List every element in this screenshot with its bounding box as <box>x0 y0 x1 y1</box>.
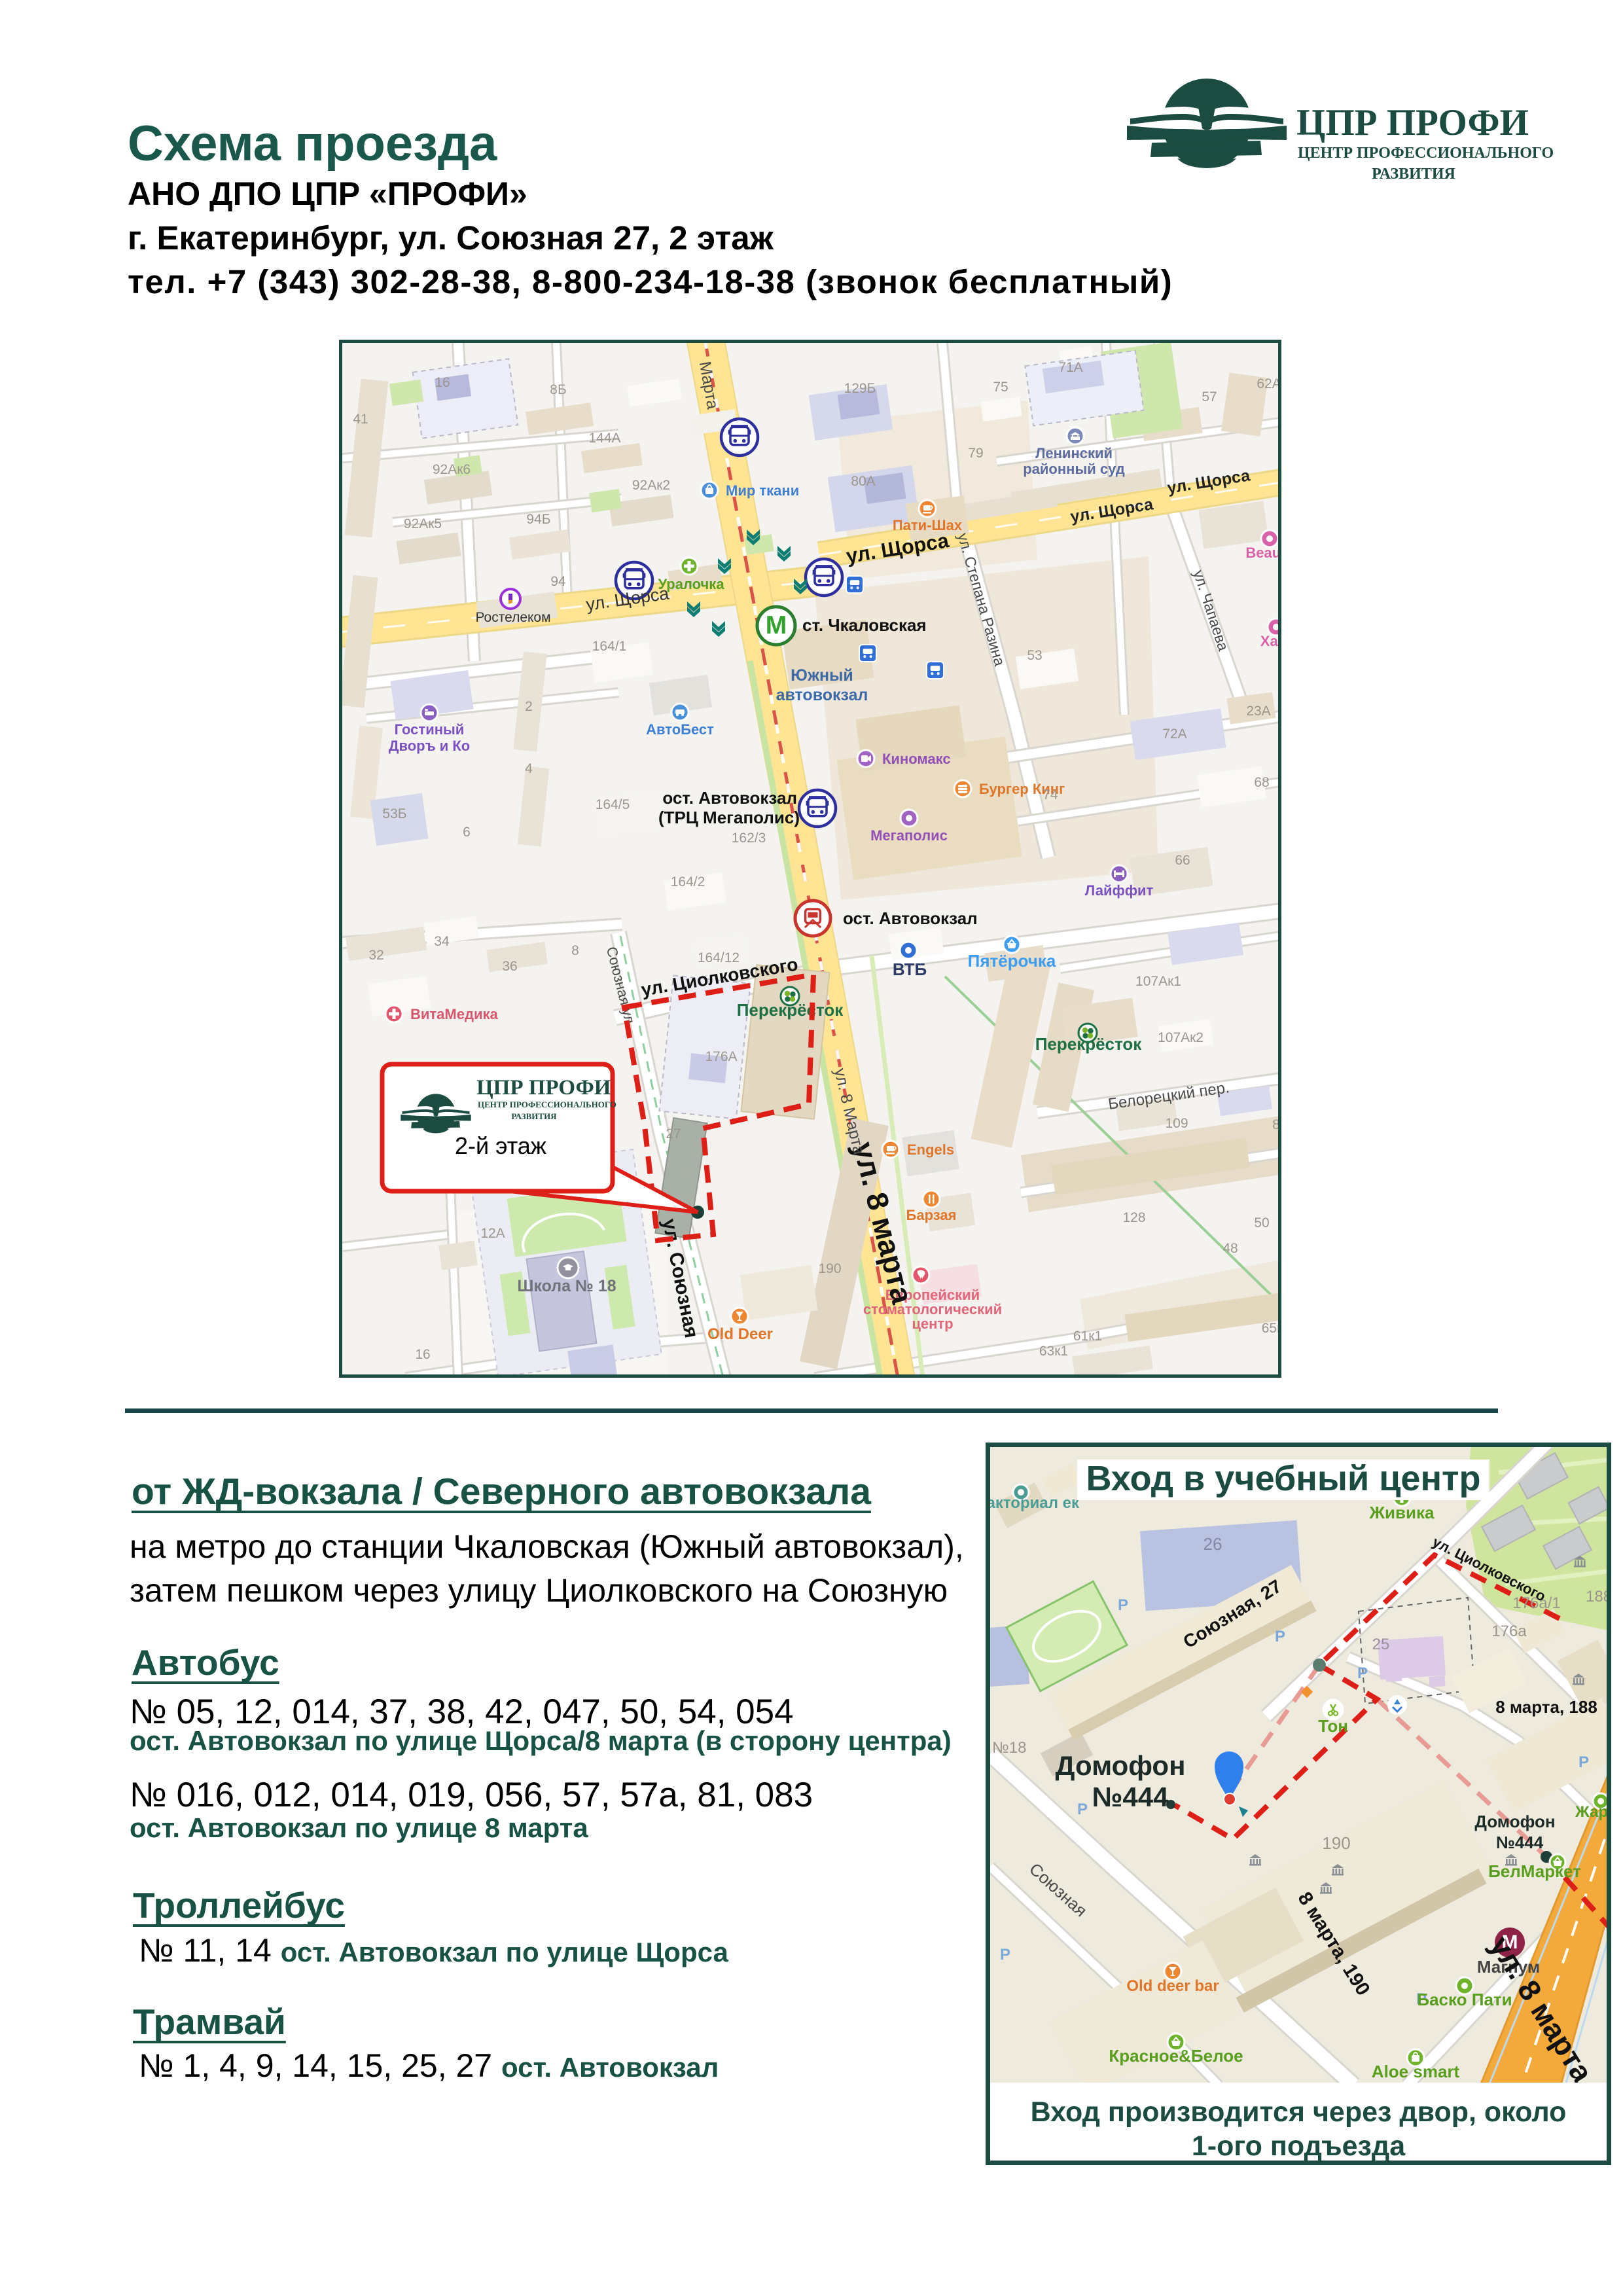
svg-text:М: М <box>766 611 787 639</box>
svg-text:176А: 176А <box>705 1049 737 1064</box>
svg-text:92Ак6: 92Ак6 <box>433 462 471 477</box>
svg-text:Дворъ и Ко: Дворъ и Ко <box>389 738 470 754</box>
svg-text:25: 25 <box>1372 1636 1390 1653</box>
svg-text:Ростелеком: Ростелеком <box>475 610 550 625</box>
svg-text:Баско Пати: Баско Пати <box>1417 1990 1512 2009</box>
svg-text:Old deer bar: Old deer bar <box>1126 1977 1219 1995</box>
svg-text:Гостиный: Гостиный <box>395 721 465 738</box>
svg-text:94: 94 <box>550 574 566 589</box>
svg-text:8 марта, 188: 8 марта, 188 <box>1495 1697 1597 1717</box>
svg-text:109: 109 <box>1165 1116 1188 1131</box>
svg-text:Ленинский: Ленинский <box>1035 445 1113 461</box>
svg-text:Перекрёсток: Перекрёсток <box>1035 1034 1143 1054</box>
svg-text:ст. Чкаловская: ст. Чкаловская <box>802 615 927 635</box>
svg-text:128: 128 <box>1122 1210 1145 1225</box>
svg-text:P: P <box>1077 1801 1088 1818</box>
svg-text:Перекрёсток: Перекрёсток <box>737 1000 844 1020</box>
svg-text:Вход в учебный центр: Вход в учебный центр <box>1086 1459 1481 1498</box>
svg-text:162/3: 162/3 <box>732 831 766 846</box>
svg-text:80А: 80А <box>851 474 875 489</box>
svg-text:ЦПР ПРОФИ: ЦПР ПРОФИ <box>1296 102 1529 143</box>
svg-text:Барзая: Барзая <box>906 1207 957 1223</box>
svg-text:ВитаМедика: ВитаМедика <box>410 1006 498 1022</box>
svg-text:БелМаркет: БелМаркет <box>1488 1861 1581 1881</box>
svg-text:№18: №18 <box>992 1739 1026 1757</box>
svg-text:Домофон: Домофон <box>1056 1750 1186 1781</box>
svg-text:190: 190 <box>1322 1833 1350 1853</box>
svg-text:8Б: 8Б <box>550 382 566 397</box>
svg-text:Вход производится через двор,: Вход производится через двор, около <box>1031 2096 1567 2128</box>
svg-text:Тон: Тон <box>1318 1716 1348 1736</box>
svg-text:Лайффит: Лайффит <box>1085 882 1154 899</box>
svg-text:P: P <box>1118 1596 1128 1614</box>
svg-text:63к1: 63к1 <box>1039 1344 1068 1359</box>
svg-text:75: 75 <box>993 380 1008 395</box>
svg-text:144А: 144А <box>588 431 620 446</box>
svg-text:92Ак5: 92Ак5 <box>404 516 442 531</box>
svg-text:2-й этаж: 2-й этаж <box>455 1132 546 1159</box>
svg-text:Мегаполис: Мегаполис <box>870 827 948 844</box>
svg-text:164/1: 164/1 <box>592 639 627 654</box>
svg-text:ост. Автовокзал: ост. Автовокзал <box>843 908 978 928</box>
svg-text:ЦЕНТР ПРОФЕССИОНАЛЬНОГО: ЦЕНТР ПРОФЕССИОНАЛЬНОГО <box>1298 145 1554 162</box>
svg-text:36: 36 <box>502 959 517 974</box>
svg-text:6: 6 <box>463 825 471 840</box>
svg-text:2: 2 <box>525 699 533 714</box>
svg-text:34: 34 <box>434 934 450 949</box>
svg-text:50: 50 <box>1254 1215 1269 1230</box>
svg-text:71А: 71А <box>1058 360 1082 375</box>
svg-text:автовокзал: автовокзал <box>776 686 868 704</box>
svg-text:Engels: Engels <box>907 1141 954 1158</box>
svg-text:ЦПР ПРОФИ: ЦПР ПРОФИ <box>476 1076 611 1100</box>
svg-text:Old Deer: Old Deer <box>707 1325 773 1343</box>
svg-text:Киномакс: Киномакс <box>882 751 951 767</box>
svg-text:53: 53 <box>1027 648 1042 663</box>
svg-text:32: 32 <box>368 948 383 963</box>
svg-text:8: 8 <box>571 943 579 958</box>
svg-text:РАЗВИТИЯ: РАЗВИТИЯ <box>511 1111 557 1121</box>
svg-text:№444: №444 <box>1496 1833 1544 1852</box>
svg-text:92Ак2: 92Ак2 <box>632 478 670 493</box>
svg-text:94Б: 94Б <box>526 512 550 527</box>
svg-text:Факториал ек: Факториал ек <box>986 1494 1080 1512</box>
svg-text:26: 26 <box>1204 1534 1222 1554</box>
svg-text:176а/1: 176а/1 <box>1512 1594 1560 1612</box>
svg-text:27: 27 <box>666 1126 681 1141</box>
svg-text:районный суд: районный суд <box>1023 461 1125 477</box>
svg-text:ЦЕНТР ПРОФЕССИОНАЛЬНОГО: ЦЕНТР ПРОФЕССИОНАЛЬНОГО <box>478 1100 616 1109</box>
svg-text:23А: 23А <box>1246 704 1270 719</box>
svg-text:107Ак2: 107Ак2 <box>1158 1030 1204 1045</box>
svg-text:12А: 12А <box>480 1226 505 1241</box>
svg-text:Южный: Южный <box>791 666 853 685</box>
svg-text:Красное&Белое: Красное&Белое <box>1109 2046 1243 2066</box>
svg-text:Beauty: Beauty <box>1245 545 1281 561</box>
svg-text:ост. Автовокзал: ост. Автовокзал <box>662 788 797 808</box>
svg-text:(ТРЦ Мегаполис): (ТРЦ Мегаполис) <box>658 808 800 827</box>
svg-text:P: P <box>1000 1946 1010 1964</box>
svg-text:57: 57 <box>1202 389 1217 404</box>
svg-text:P: P <box>1275 1628 1285 1645</box>
svg-text:164/5: 164/5 <box>596 797 630 812</box>
svg-text:164/12: 164/12 <box>698 950 740 965</box>
svg-text:107Ак1: 107Ак1 <box>1135 974 1181 989</box>
svg-text:Мир ткани: Мир ткани <box>726 482 799 499</box>
svg-text:Живика: Живика <box>1369 1503 1435 1522</box>
svg-text:53Б: 53Б <box>382 806 406 821</box>
svg-text:129Б: 129Б <box>844 381 876 396</box>
svg-text:48: 48 <box>1222 1241 1238 1256</box>
svg-text:68: 68 <box>1254 775 1269 790</box>
svg-text:Домофон: Домофон <box>1474 1812 1555 1831</box>
svg-text:16: 16 <box>435 375 450 390</box>
svg-text:Жарде: Жарде <box>1575 1803 1611 1821</box>
svg-text:P: P <box>1578 1753 1589 1771</box>
svg-text:АвтоБест: АвтоБест <box>646 721 714 738</box>
svg-text:72А: 72А <box>1162 726 1186 742</box>
svg-text:Пати-Шах: Пати-Шах <box>893 517 963 533</box>
svg-text:16: 16 <box>415 1347 430 1362</box>
svg-text:74: 74 <box>1043 787 1058 802</box>
svg-text:центр: центр <box>912 1316 953 1332</box>
svg-text:61к1: 61к1 <box>1073 1329 1102 1344</box>
svg-text:62А: 62А <box>1257 376 1281 391</box>
svg-text:Школа № 18: Школа № 18 <box>517 1277 616 1295</box>
svg-text:66: 66 <box>1175 853 1190 868</box>
svg-text:Aloe smart: Aloe smart <box>1372 2062 1460 2081</box>
svg-text:176а: 176а <box>1491 1623 1527 1640</box>
svg-text:№444: №444 <box>1092 1782 1169 1812</box>
svg-text:Пятёрочка: Пятёрочка <box>968 951 1056 971</box>
svg-text:4: 4 <box>525 761 533 776</box>
svg-text:164/2: 164/2 <box>671 874 705 889</box>
svg-text:190: 190 <box>818 1261 841 1276</box>
svg-text:ВТБ: ВТБ <box>893 960 927 979</box>
svg-text:1-ого подъезда: 1-ого подъезда <box>1192 2130 1406 2162</box>
svg-text:41: 41 <box>353 412 368 427</box>
svg-text:P: P <box>1357 1664 1368 1682</box>
svg-text:РАЗВИТИЯ: РАЗВИТИЯ <box>1372 166 1455 183</box>
svg-text:79: 79 <box>968 446 983 461</box>
